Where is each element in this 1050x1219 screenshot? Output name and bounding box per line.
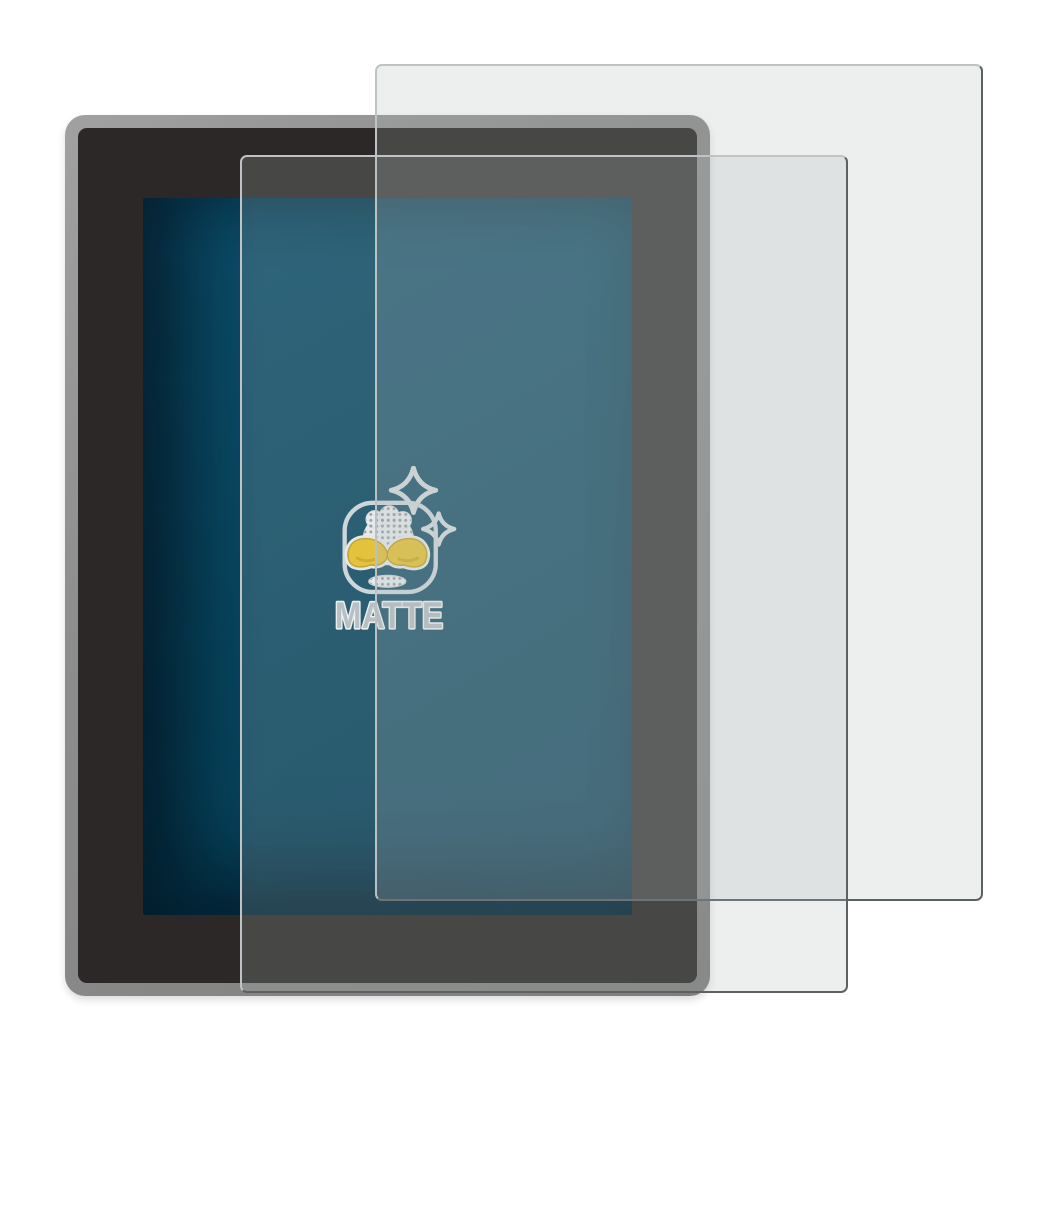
screen-protector-film-front (240, 155, 848, 993)
product-image: MATTE (0, 0, 1050, 1219)
